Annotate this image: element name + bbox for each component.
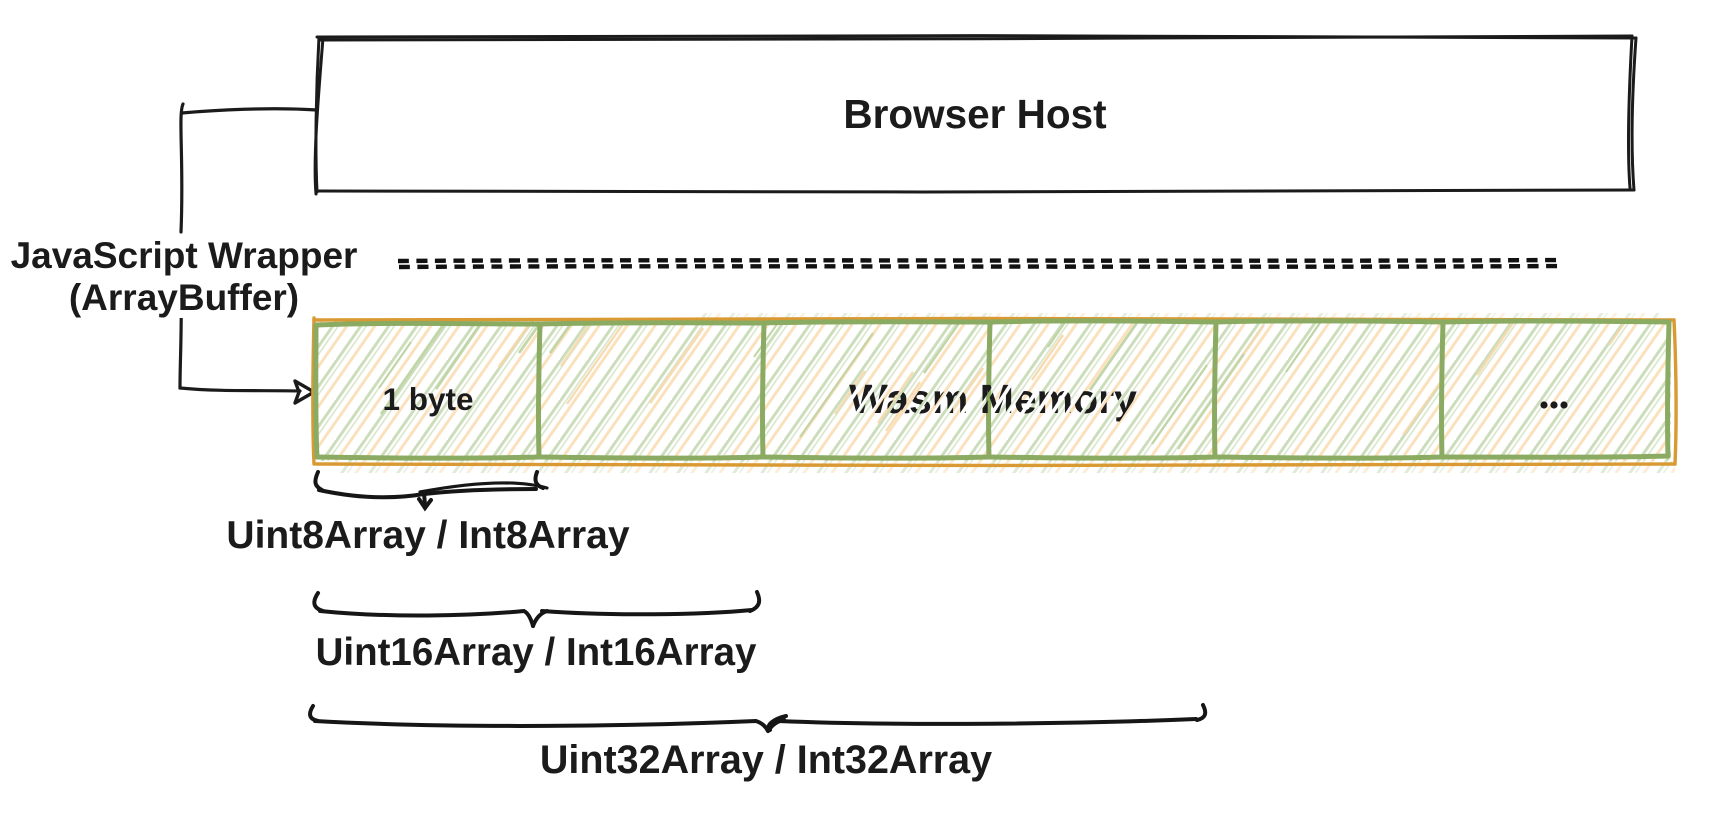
svg-text:(ArrayBuffer): (ArrayBuffer) <box>69 277 299 318</box>
svg-text:1 byte: 1 byte <box>382 381 473 417</box>
svg-text:Uint16Array / Int16Array: Uint16Array / Int16Array <box>316 631 757 674</box>
svg-text:JavaScript Wrapper: JavaScript Wrapper <box>11 235 358 276</box>
svg-text:Wasm Memory: Wasm Memory <box>849 376 1137 422</box>
svg-text:Browser Host: Browser Host <box>843 91 1106 137</box>
svg-text:Uint32Array / Int32Array: Uint32Array / Int32Array <box>540 738 992 782</box>
svg-text:Uint8Array / Int8Array: Uint8Array / Int8Array <box>226 514 629 557</box>
